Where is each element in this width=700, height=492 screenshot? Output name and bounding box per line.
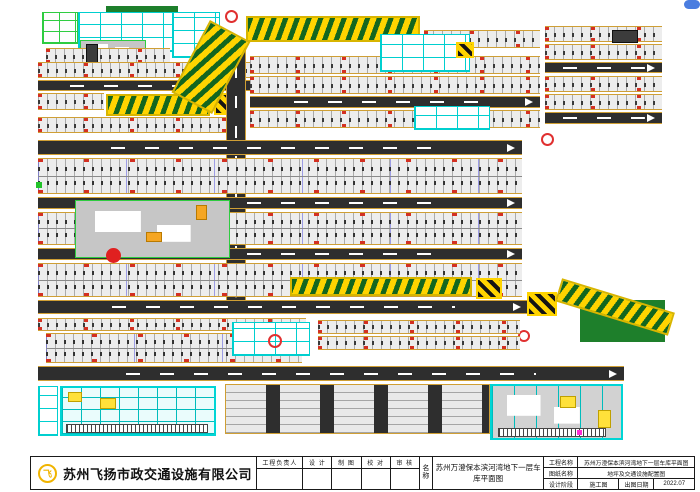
stair-block bbox=[196, 205, 207, 220]
sign-cell-2 bbox=[332, 469, 360, 489]
info-table: 工程名称 苏州万澄保本滨河湾地下一层车库平面图 图纸名称 地坪及交通设施配置图 … bbox=[544, 457, 694, 489]
utility-dot bbox=[577, 430, 582, 435]
sign-col-0: 工程负责人 bbox=[257, 457, 303, 489]
sign-cell-3 bbox=[362, 469, 390, 489]
marker-dot bbox=[36, 182, 42, 188]
info-row-project: 工程名称 苏州万澄保本滨河湾地下一层车库平面图 bbox=[544, 457, 694, 468]
sign-cell-1 bbox=[303, 469, 331, 489]
stage-value: 施工图 bbox=[578, 479, 619, 489]
company-name: 苏州飞扬市政交通设施有限公司 bbox=[63, 464, 252, 483]
company-logo-icon: 飞 bbox=[38, 464, 57, 483]
parking-columns bbox=[225, 384, 490, 434]
sign-header-4: 审 核 bbox=[391, 457, 419, 469]
sheet-name-label: 图纸名称 bbox=[544, 468, 578, 478]
parking-strip bbox=[250, 76, 540, 94]
title-bar: 飞 苏州飞扬市政交通设施有限公司 工程负责人设 计制 图校 对审 核 名称 苏州… bbox=[30, 456, 695, 490]
drawing-name-block: 名称 苏州万澄保本滨河湾地下一层车库平面图 bbox=[420, 457, 545, 489]
sign-col-4: 审 核 bbox=[391, 457, 419, 489]
speed-ramp bbox=[290, 277, 472, 296]
equipment-box bbox=[100, 398, 116, 409]
sign-header-2: 制 图 bbox=[332, 457, 360, 469]
core-rooms-green bbox=[42, 12, 78, 44]
axis-bubble bbox=[541, 133, 554, 146]
equipment-box bbox=[68, 392, 82, 402]
ramp-hatch-box bbox=[456, 42, 474, 58]
info-row-stage: 设计阶段 施工图 出图日期 2022.07 bbox=[544, 479, 694, 489]
sign-col-3: 校 对 bbox=[362, 457, 391, 489]
parking-strip bbox=[38, 93, 104, 110]
sign-header-0: 工程负责人 bbox=[257, 457, 302, 469]
driveway bbox=[38, 300, 528, 314]
parking-strip bbox=[545, 26, 662, 42]
bike-rack bbox=[498, 428, 606, 437]
stage-label: 设计阶段 bbox=[544, 479, 578, 489]
sign-header-1: 设 计 bbox=[303, 457, 331, 469]
parking-strip bbox=[38, 117, 234, 133]
parking-strip bbox=[318, 336, 520, 350]
signature-table: 工程负责人设 计制 图校 对审 核 bbox=[257, 457, 420, 489]
parking-strip bbox=[318, 320, 520, 334]
date-value: 2022.07 bbox=[654, 479, 694, 489]
axis-bubble bbox=[268, 334, 282, 348]
driveway bbox=[250, 96, 540, 108]
driveway bbox=[545, 112, 662, 124]
equipment-box bbox=[598, 410, 611, 428]
company-block: 飞 苏州飞扬市政交通设施有限公司 bbox=[31, 457, 257, 489]
label-box bbox=[612, 30, 638, 43]
sign-cell-0 bbox=[257, 469, 302, 489]
bike-rack bbox=[66, 424, 208, 433]
parking-strip bbox=[545, 44, 662, 60]
sign-cell-4 bbox=[391, 469, 419, 489]
drawing-name: 苏州万澄保本滨河湾地下一层车库平面图 bbox=[433, 457, 544, 489]
info-row-sheet: 图纸名称 地坪及交通设施配置图 bbox=[544, 468, 694, 479]
sign-col-2: 制 图 bbox=[332, 457, 361, 489]
equipment-box bbox=[560, 396, 576, 408]
parking-plan-canvas bbox=[0, 0, 700, 492]
core-rooms-cyan bbox=[414, 106, 490, 130]
stair-block bbox=[146, 232, 162, 242]
project-name-label: 工程名称 bbox=[544, 457, 578, 467]
parking-strip bbox=[545, 94, 662, 110]
sheet-name-value: 地坪及交通设施配置图 bbox=[578, 468, 694, 478]
sign-col-1: 设 计 bbox=[303, 457, 332, 489]
parking-strip bbox=[545, 76, 662, 92]
name-label: 名称 bbox=[420, 457, 433, 489]
driveway bbox=[545, 62, 662, 73]
ramp-hatch-box bbox=[527, 292, 557, 316]
scroll-hint-pill bbox=[684, 0, 700, 9]
date-label: 出图日期 bbox=[619, 479, 654, 489]
driveway bbox=[38, 140, 522, 155]
ramp-hatch-box bbox=[476, 278, 502, 299]
driveway bbox=[38, 366, 624, 381]
parking-double-strip bbox=[38, 158, 522, 194]
core-rooms-cyan bbox=[38, 386, 58, 436]
project-name-value: 苏州万澄保本滨河湾地下一层车库平面图 bbox=[578, 457, 694, 467]
parking-strip bbox=[250, 110, 540, 128]
axis-bubble bbox=[225, 10, 238, 23]
sign-header-3: 校 对 bbox=[362, 457, 390, 469]
fire-equipment-dot bbox=[106, 248, 121, 263]
